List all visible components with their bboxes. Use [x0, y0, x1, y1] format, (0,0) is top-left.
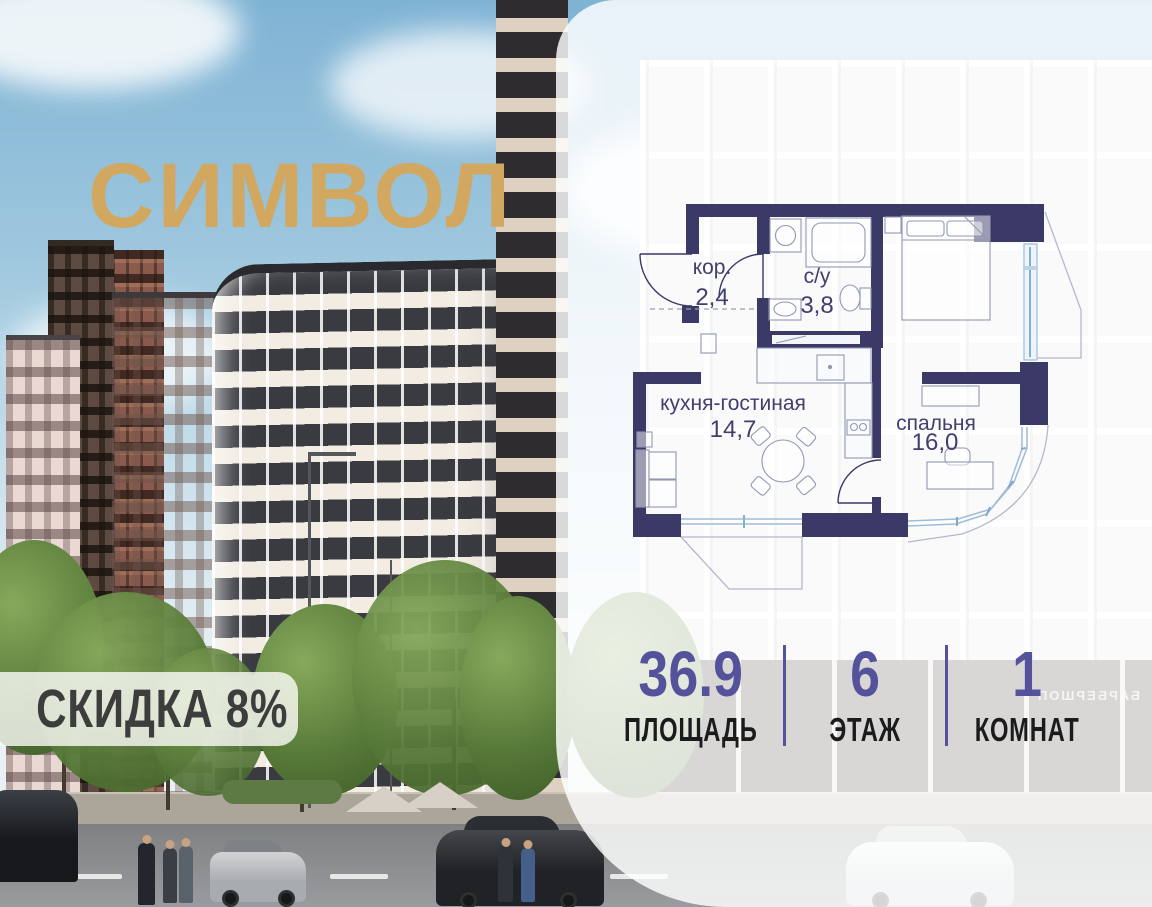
stat-floor-value: 6 [799, 642, 932, 706]
room-area-kitchen: 14,7 [710, 416, 757, 443]
stats-row: 36.9 ПЛОЩАДЬ 6 ЭТАЖ 1 КОМНАТ [598, 642, 1106, 749]
room-area-bedroom: 16,0 [912, 429, 959, 456]
stat-floor-label: ЭТАЖ [809, 711, 923, 749]
stat-area-label: ПЛОЩАДЬ [624, 711, 758, 749]
car-black-suv [0, 790, 78, 882]
stat-rooms: 1 КОМНАТ [948, 642, 1106, 749]
brand-logo: СИМВОЛ [88, 150, 492, 242]
car-silver-sedan [210, 852, 306, 902]
floor-plan: кор. 2,4 с/у 3,8 кухня-гостиная 14,7 спа… [610, 186, 1110, 606]
stat-rooms-label: КОМНАТ [970, 711, 1084, 749]
hedge [222, 780, 342, 804]
plan-furniture [636, 216, 993, 507]
stat-rooms-value: 1 [960, 642, 1093, 706]
stat-area-value: 36.9 [613, 642, 769, 706]
pedestrian [521, 848, 535, 902]
room-name-corridor: кор. [693, 256, 732, 279]
room-name-kitchen: кухня-гостиная [660, 392, 806, 415]
car-dark-sedan [436, 830, 604, 906]
pedestrian [138, 843, 155, 905]
pedestrian [498, 846, 513, 902]
pedestrian [179, 846, 193, 903]
room-area-corridor: 2,4 [695, 284, 728, 311]
room-area-bathroom: 3,8 [800, 292, 833, 319]
pedestrian [163, 848, 177, 903]
lamp-arm [308, 452, 356, 456]
stat-area: 36.9 ПЛОЩАДЬ [598, 642, 783, 749]
discount-badge: СКИДКА 8% [0, 672, 298, 746]
discount-badge-label: СКИДКА 8% [36, 678, 288, 740]
road-marking [330, 874, 388, 879]
apartment-listing-card[interactable]: БАРБЕРШОП [0, 0, 1152, 907]
wall-duct [772, 335, 860, 344]
stat-floor: 6 ЭТАЖ [786, 642, 944, 749]
room-name-bathroom: с/у [804, 265, 831, 288]
